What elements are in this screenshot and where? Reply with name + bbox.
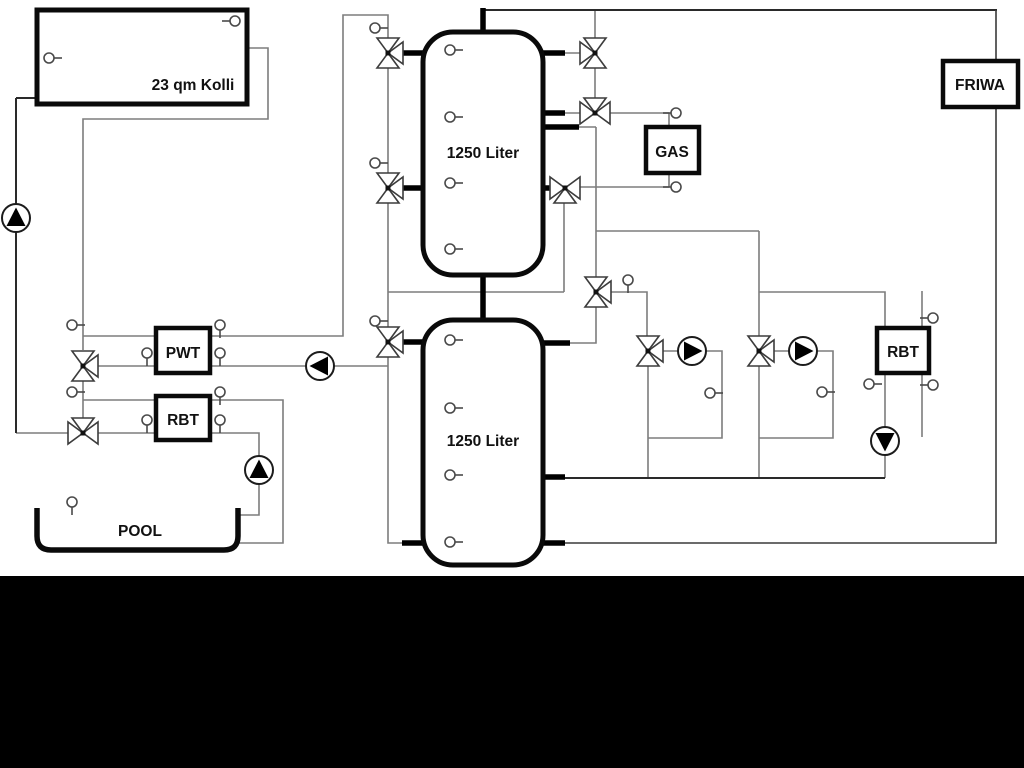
pool-pump	[245, 456, 273, 484]
three-way-valve-tank1-top-right	[580, 38, 606, 68]
sensor-tank1-mid-feed	[370, 158, 388, 168]
sensor-pwt-secondary-in	[215, 348, 225, 366]
sensor-rbt-left-primary	[142, 415, 152, 433]
three-way-valve-tank1-top-left	[377, 38, 403, 68]
three-way-valve-gas-feed	[580, 98, 610, 124]
friwa-label: FRIWA	[955, 77, 1005, 94]
three-way-valve-pool-loop	[68, 418, 98, 444]
sensor-gas-flow	[663, 108, 681, 118]
rbt-right-label: RBT	[887, 344, 919, 361]
gas-label: GAS	[655, 144, 689, 161]
sensor-tank1-feed	[370, 23, 388, 33]
schematic-canvas: 23 qm Kolli 1250 Liter 1250 Liter GAS FR…	[0, 0, 1024, 768]
hydraulic-schematic: 23 qm Kolli 1250 Liter 1250 Liter GAS FR…	[0, 0, 1024, 768]
sensor-pool	[67, 497, 77, 515]
sensor-rbt-left-out	[215, 387, 225, 405]
heating-branch2-pump	[789, 337, 817, 365]
tank-left-manifold-pipe	[388, 68, 402, 543]
heating-branch1-pipes	[648, 351, 722, 478]
heating-branch2-pipes	[759, 231, 885, 478]
three-way-valve-tank1-mid-left	[377, 173, 403, 203]
three-way-valve-solar-pwt	[72, 351, 98, 381]
sensor-distribution	[623, 275, 633, 293]
friwa-return-pipe	[543, 10, 996, 543]
three-way-valve-tank1-lower-right	[550, 177, 580, 203]
three-way-valve-tank2-left	[377, 327, 403, 357]
sensor-rbt-left-return	[215, 415, 225, 433]
solar-pump	[2, 204, 30, 232]
heating-branch1-pump	[678, 337, 706, 365]
three-way-valve-heating-branch2	[748, 336, 774, 366]
pool-label: POOL	[118, 523, 162, 540]
pwt-label: PWT	[166, 345, 201, 362]
sensor-pwt-primary-return	[142, 348, 152, 366]
sensor-gas-return	[663, 182, 681, 192]
pool-solar-return-pipe	[16, 98, 37, 433]
sensor-rbt-right-return	[864, 379, 882, 389]
rbt-left-label: RBT	[167, 412, 199, 429]
three-way-valve-heating-branch1	[637, 336, 663, 366]
tank2-label: 1250 Liter	[447, 433, 519, 450]
rbt-right-pump	[871, 427, 899, 455]
collector-label: 23 qm Kolli	[152, 77, 235, 94]
sensor-branch1-return	[705, 388, 723, 398]
sensor-tank2-feed	[370, 316, 388, 326]
tank1-label: 1250 Liter	[447, 145, 519, 162]
three-way-valve-distribution	[585, 277, 611, 307]
letterbox-band	[0, 576, 1024, 768]
pwt-secondary-pump	[306, 352, 334, 380]
